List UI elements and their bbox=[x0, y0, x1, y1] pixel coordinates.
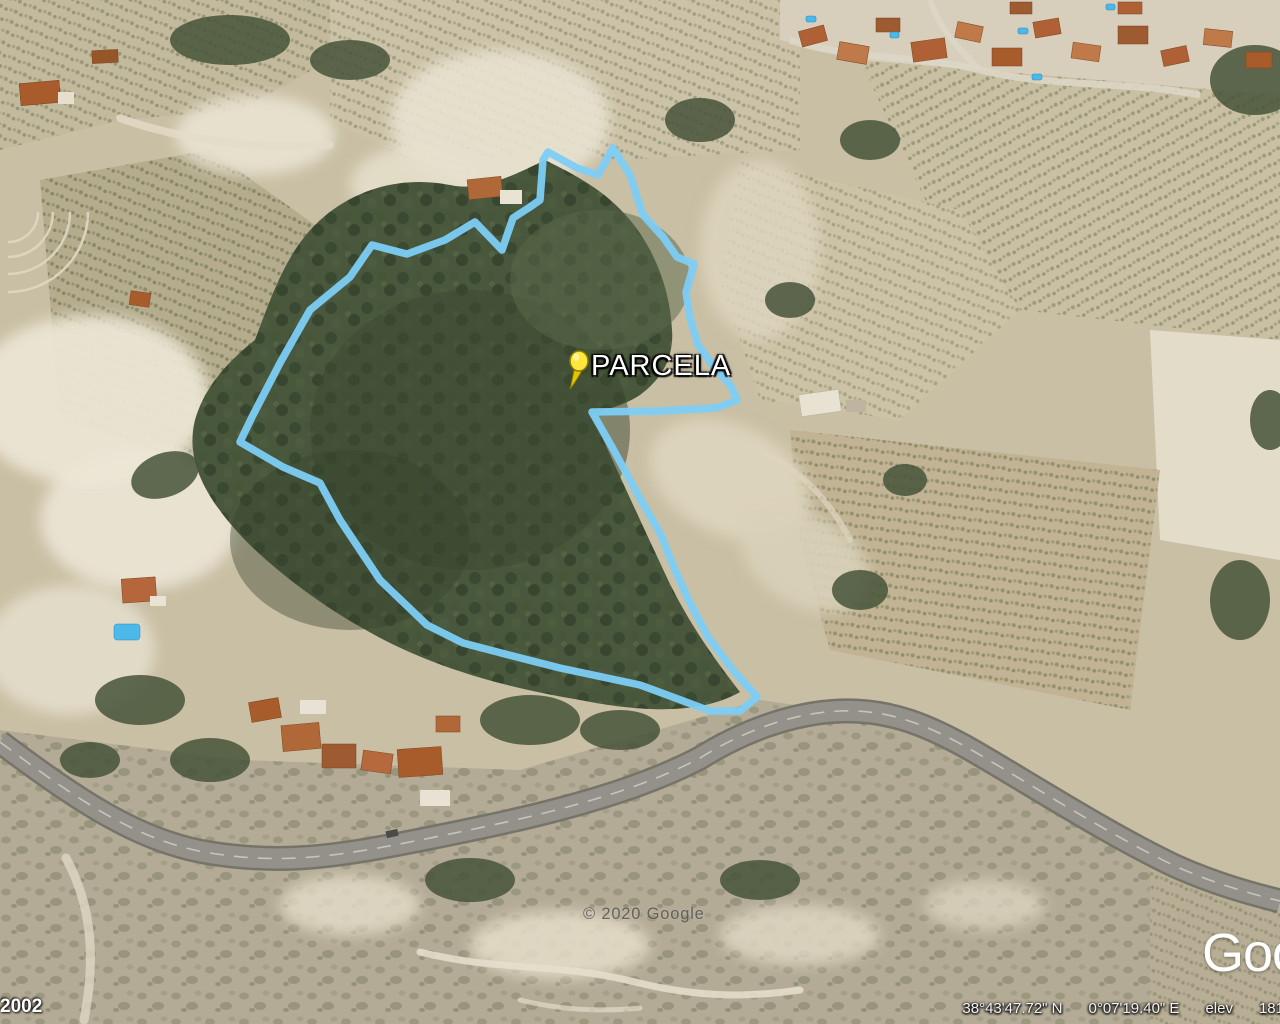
swimming-pool bbox=[114, 624, 140, 640]
longitude-value: 0°07'19.40" E bbox=[1089, 1000, 1180, 1017]
google-earth-view[interactable]: PARCELA © 2020 Google Google 2002 38°43'… bbox=[0, 0, 1280, 1024]
placemark-label[interactable]: PARCELA bbox=[591, 350, 731, 383]
latitude-value: 38°43'47.72" N bbox=[962, 1000, 1062, 1017]
status-bar: 38°43'47.72" N 0°07'19.40" E elev 181 bbox=[962, 1000, 1280, 1017]
satellite-imagery[interactable] bbox=[0, 0, 1280, 1024]
terrain-background bbox=[0, 0, 1280, 1024]
elevation-label: elev bbox=[1205, 1000, 1233, 1017]
imagery-year: 2002 bbox=[0, 996, 42, 1018]
elevation-value: 181 bbox=[1259, 1000, 1280, 1017]
google-logo: Google bbox=[1202, 922, 1280, 984]
copyright-watermark: © 2020 Google bbox=[583, 905, 705, 924]
